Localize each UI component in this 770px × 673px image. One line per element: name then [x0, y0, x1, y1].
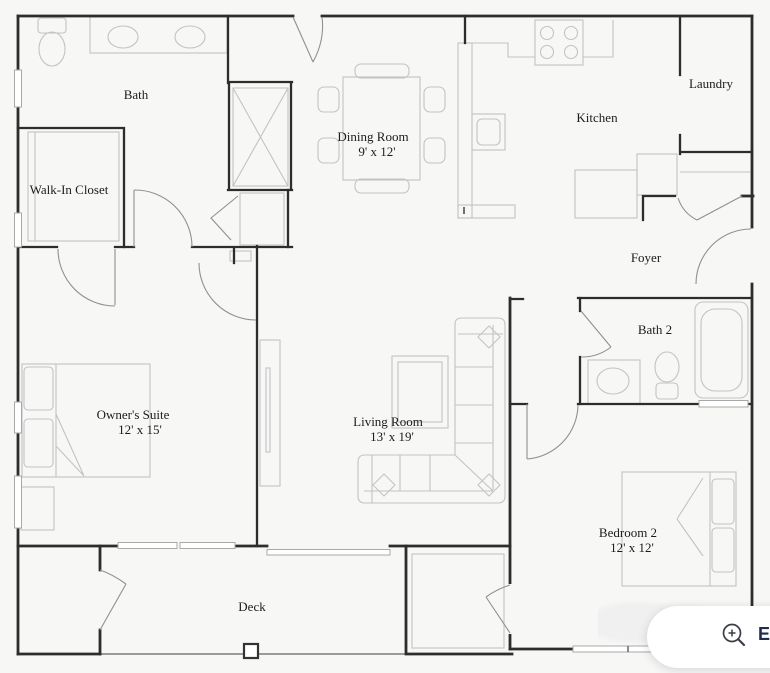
room-label-laundry: Laundry	[689, 76, 734, 91]
entry-door-icon	[696, 229, 751, 284]
closet-door-icon	[58, 249, 115, 306]
room-label-bedroom2: Bedroom 2	[599, 525, 657, 540]
stove-icon	[535, 20, 583, 65]
linen-closet-icon	[240, 193, 284, 245]
room-label-bath: Bath	[124, 87, 149, 102]
toilet2-icon	[655, 352, 679, 399]
room-dims-bedroom2: 12' x 12'	[610, 540, 654, 555]
double-vanity-icon	[90, 17, 227, 53]
expand-button-label: E	[758, 624, 770, 645]
window-icon	[15, 70, 22, 107]
sectional-sofa-icon	[358, 318, 505, 503]
linen-bifold-door-icon	[211, 196, 238, 240]
room-label-bath2: Bath 2	[638, 322, 672, 337]
room-label-walk-in-closet: Walk-In Closet	[30, 182, 109, 197]
window-icon	[15, 213, 22, 247]
deck-post	[244, 644, 258, 658]
pocket-door-icon	[699, 401, 748, 408]
coat-closet-door-icon	[678, 196, 742, 220]
bedroom2-door-icon	[527, 404, 578, 459]
fridge-icon	[637, 154, 677, 195]
foyer-counter-icon	[575, 170, 637, 218]
sliding-door-icon	[118, 543, 177, 549]
bath-door-icon	[134, 190, 192, 247]
hall-exterior-door-icon	[293, 17, 323, 62]
room-label-kitchen: Kitchen	[576, 110, 618, 125]
storage-closet-icon	[412, 554, 504, 648]
dresser-icon	[21, 487, 54, 530]
window-icon	[15, 476, 22, 528]
room-label-owners-suite: Owner's Suite	[97, 407, 170, 422]
room-dims-owners-suite: 12' x 15'	[118, 422, 162, 437]
room-label-foyer: Foyer	[631, 250, 662, 265]
zoom-in-icon	[721, 622, 749, 650]
room-label-living-room: Living Room	[353, 414, 423, 429]
window-icon	[15, 402, 22, 433]
room-label-deck: Deck	[238, 599, 266, 614]
bath2-door-icon	[581, 311, 611, 357]
window-icon	[267, 550, 390, 556]
deck-closet-door-icon	[100, 570, 126, 630]
sink-icon	[588, 360, 640, 404]
tv-console-icon	[260, 340, 280, 486]
sliding-door-icon	[180, 543, 235, 549]
expand-button[interactable]: E	[647, 606, 770, 668]
room-dims-living-room: 13' x 19'	[370, 429, 414, 444]
room-label-dining-room: Dining Room	[337, 129, 408, 144]
owners-suite-door-icon	[199, 263, 256, 320]
wall-opening	[506, 584, 515, 634]
shower-icon	[233, 88, 288, 186]
room-dims-dining-room: 9' x 12'	[358, 144, 395, 159]
floor-plan: Bath Walk-In Closet Dining Room 9' x 12'…	[0, 0, 770, 673]
toilet-icon	[38, 18, 66, 66]
bathtub-icon	[695, 302, 748, 398]
